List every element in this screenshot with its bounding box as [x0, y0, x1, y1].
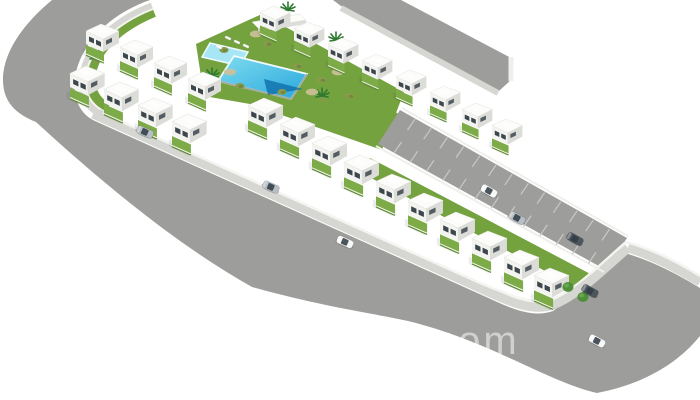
townhouse [501, 250, 539, 292]
gravel-patch [306, 89, 318, 96]
townhouse [459, 103, 492, 140]
bush [263, 41, 272, 47]
townhouse [469, 231, 507, 273]
townhouse [151, 56, 187, 96]
townhouse [277, 117, 315, 159]
townhouse [309, 136, 347, 178]
bush [235, 83, 244, 89]
bush [293, 63, 302, 69]
property-render: s.com [0, 0, 700, 400]
townhouse [489, 119, 522, 156]
townhouse [437, 212, 475, 254]
townhouse [405, 193, 443, 235]
bush [277, 89, 286, 95]
watermark-text: s.com [398, 319, 520, 363]
gravel-patch [224, 69, 236, 76]
tree [563, 282, 574, 292]
townhouse [245, 98, 283, 140]
townhouse [341, 155, 379, 197]
townhouse [427, 86, 460, 123]
townhouse [117, 40, 153, 80]
townhouse [185, 72, 221, 112]
townhouse [373, 174, 411, 216]
bush [317, 77, 326, 83]
render-scene: s.com [0, 0, 700, 400]
bush [345, 93, 354, 99]
